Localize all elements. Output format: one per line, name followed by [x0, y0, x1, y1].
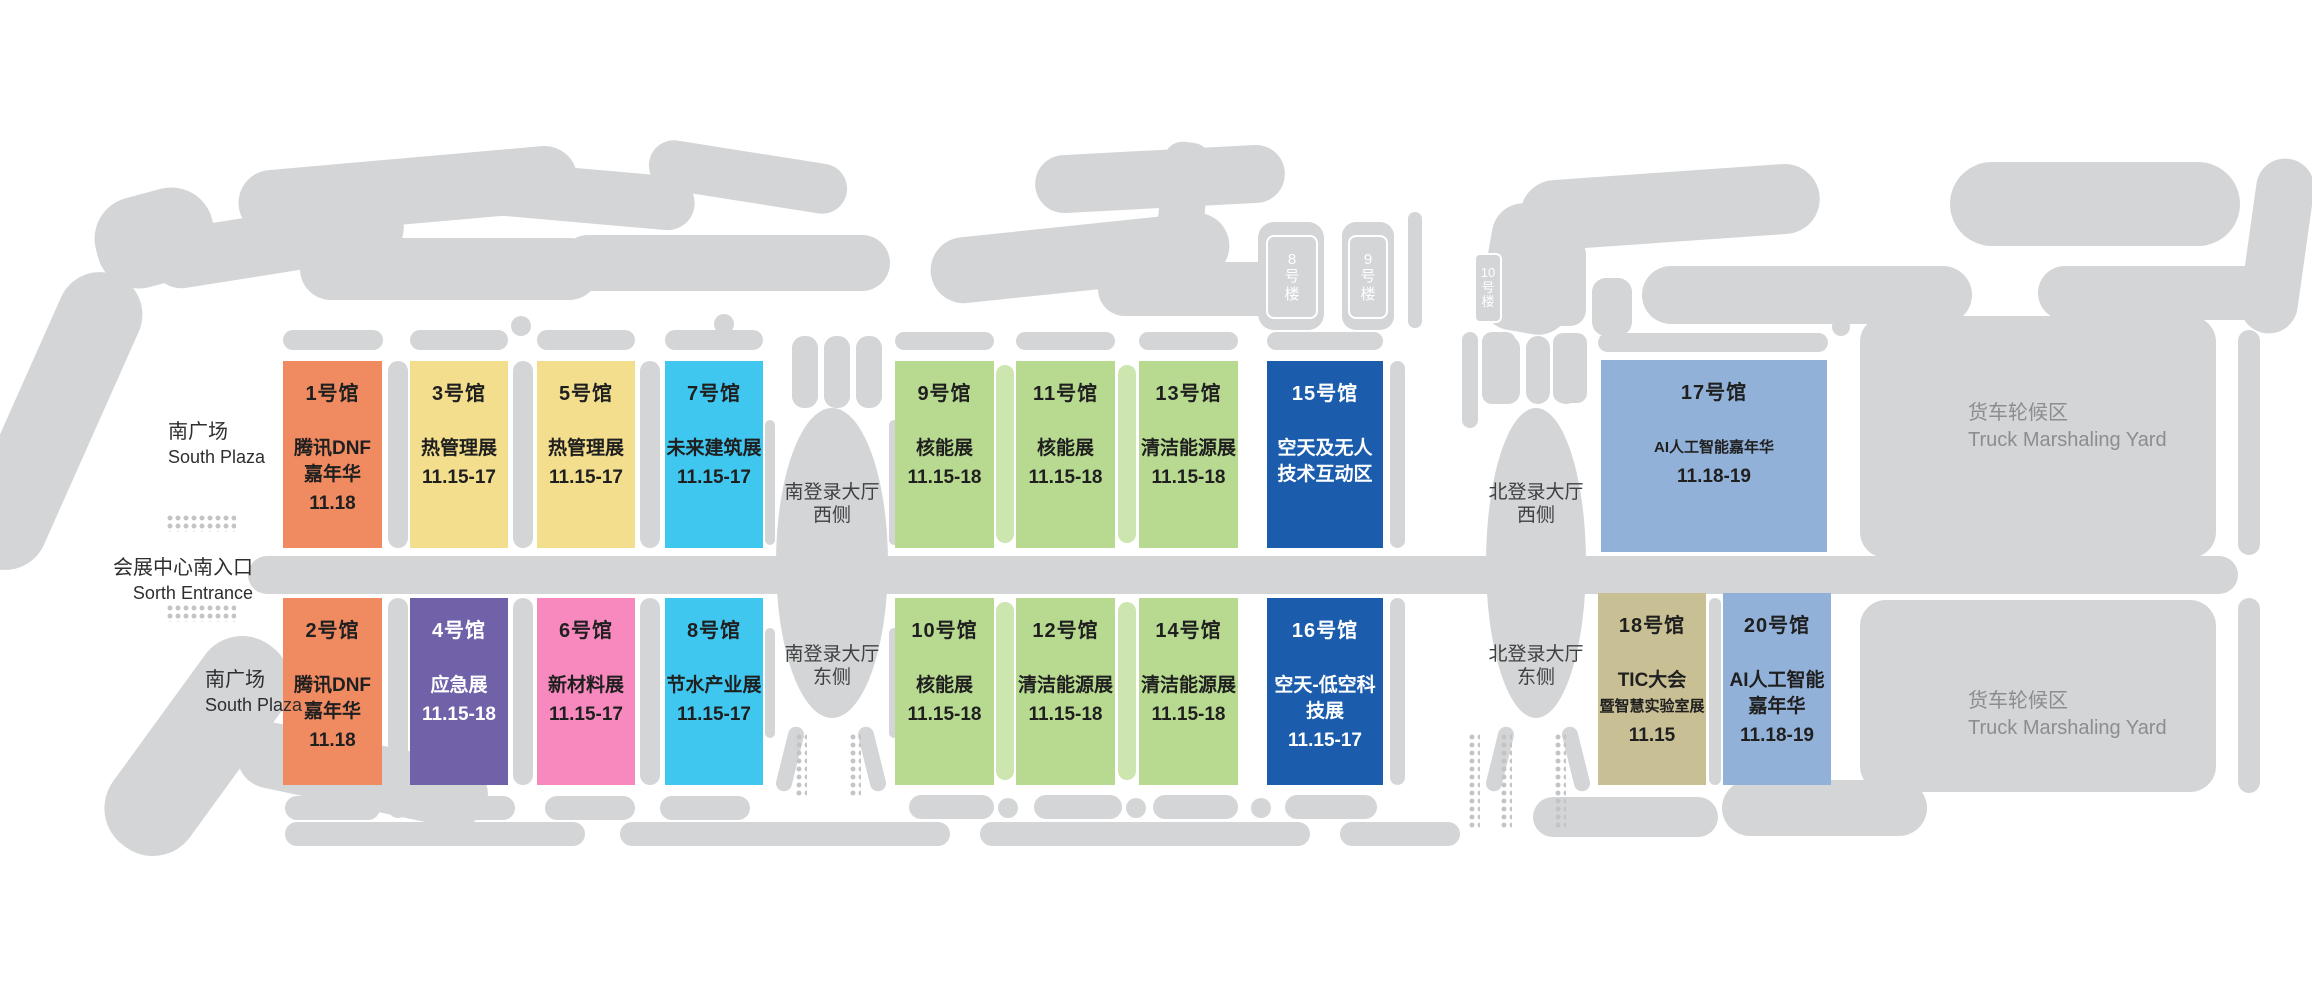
- hall-5: 5号馆热管理展11.15-17: [537, 361, 635, 548]
- label-south-plaza-top: 南广场 South Plaza: [168, 420, 265, 470]
- hall-dates: 11.15-18: [1152, 467, 1226, 489]
- decor-shape: [537, 330, 635, 350]
- hall-name-line: 清洁能源展: [1018, 673, 1113, 699]
- hall-number: 10号馆: [911, 614, 977, 643]
- building-8-plate: 8号楼: [1266, 235, 1318, 319]
- decor-shape: [388, 798, 408, 818]
- decor-shape: [620, 822, 950, 846]
- hall-number: 18号馆: [1619, 609, 1685, 638]
- truck-yard-label-zh: 货车轮候区: [1968, 688, 2167, 715]
- hall-dates: 11.18: [309, 493, 356, 515]
- hall-exhibition-name: AI人工智能嘉年华: [1729, 668, 1824, 720]
- hall-exhibition-name: 核能展: [1037, 436, 1094, 462]
- decor-shape: [1496, 336, 1520, 404]
- hall-16: 16号馆空天-低空科技展11.15-17: [1267, 598, 1383, 785]
- hall-exhibition-name: 新材料展: [548, 673, 624, 699]
- hall-name-line: 应急展: [430, 673, 487, 699]
- hall-dates: 11.15-18: [1029, 467, 1103, 489]
- hall-exhibition-name: 核能展: [916, 436, 973, 462]
- hall-name-line: 嘉年华: [1729, 694, 1824, 720]
- hall-dates: 11.15-17: [422, 467, 496, 489]
- hall-exhibition-name: 清洁能源展: [1018, 673, 1113, 699]
- plate-char: 号: [1284, 268, 1299, 285]
- building-9-plate: 9号楼: [1348, 235, 1388, 319]
- dots-decoration: [1554, 733, 1566, 829]
- hall-14: 14号馆清洁能源展11.15-18: [1139, 598, 1238, 785]
- label-line: 西侧: [1486, 504, 1586, 527]
- hall-name-line: TIC大会: [1599, 668, 1704, 694]
- hall-name-line: AI人工智能: [1729, 668, 1824, 694]
- hall-connector: [996, 365, 1014, 543]
- decor-shape: [2238, 598, 2260, 793]
- decor-shape: [1408, 212, 1422, 328]
- hall-7: 7号馆未来建筑展11.15-17: [665, 361, 763, 548]
- decor-shape: [1390, 598, 1405, 785]
- truck-yard-label-zh: 货车轮候区: [1968, 400, 2167, 427]
- truck-yard-label: 货车轮候区 Truck Marshaling Yard: [1968, 400, 2167, 454]
- hall-number: 20号馆: [1744, 609, 1810, 638]
- hall-number: 14号馆: [1155, 614, 1221, 643]
- hall-exhibition-name: 清洁能源展: [1141, 436, 1236, 462]
- hall-dates: 11.18-19: [1740, 725, 1814, 747]
- hall-name-line: 清洁能源展: [1141, 673, 1236, 699]
- hall-connector: [1118, 365, 1136, 543]
- plate-char: 8: [1288, 251, 1296, 268]
- hall-number: 12号馆: [1032, 614, 1098, 643]
- decor-shape: [1251, 798, 1271, 818]
- label-south-plaza-zh: 南广场: [168, 420, 265, 445]
- hall-12: 12号馆清洁能源展11.15-18: [1016, 598, 1115, 785]
- decor-shape: [1462, 332, 1478, 428]
- decor-shape: [2238, 330, 2260, 555]
- decor-shape: [1592, 278, 1632, 336]
- hall-name-line: 热管理展: [548, 436, 624, 462]
- decor-shape: [1285, 795, 1377, 819]
- hall-dates: 11.18: [309, 730, 356, 752]
- hall-name-line: 腾讯DNF: [294, 436, 371, 462]
- decor-shape: [300, 238, 600, 300]
- hall-number: 1号馆: [305, 377, 359, 406]
- hall-name-line: 热管理展: [421, 436, 497, 462]
- plate-char: 楼: [1481, 295, 1494, 310]
- decor-shape: [1832, 318, 1850, 336]
- decor-shape: [660, 796, 750, 820]
- label-south-plaza-en: South Plaza: [168, 445, 265, 470]
- label-south-entrance: 会展中心南入口 Sorth Entrance: [88, 556, 253, 606]
- hall-number: 2号馆: [305, 614, 359, 643]
- decor-shape: [420, 796, 515, 820]
- label-south-plaza-bottom: 南广场 South Plaza: [205, 668, 302, 718]
- hall-dates: 11.15-18: [1152, 704, 1226, 726]
- dots-decoration: [795, 733, 807, 797]
- hall-11: 11号馆核能展11.15-18: [1016, 361, 1115, 548]
- hall-exhibition-name: 空天及无人技术互动区: [1277, 436, 1372, 488]
- dots-decoration: [1500, 733, 1512, 829]
- hall-6: 6号馆新材料展11.15-17: [537, 598, 635, 785]
- decor-shape: [640, 361, 660, 548]
- hall-name-line: 核能展: [916, 673, 973, 699]
- hall-dates: 11.18-19: [1677, 466, 1751, 488]
- decor-shape: [388, 598, 408, 785]
- hall-exhibition-name: AI人工智能嘉年华: [1654, 435, 1774, 461]
- hall-number: 15号馆: [1292, 377, 1358, 406]
- hall-1: 1号馆腾讯DNF嘉年华11.18: [283, 361, 382, 548]
- decor-shape: [285, 796, 380, 820]
- decor-shape: [1016, 332, 1115, 350]
- decor-shape: [545, 796, 635, 820]
- label-north-hall-west: 北登录大厅 西侧: [1486, 481, 1586, 527]
- hall-number: 11号馆: [1033, 377, 1098, 406]
- hall-name-line: 节水产业展: [666, 673, 761, 699]
- hall-exhibition-name: 未来建筑展: [666, 436, 761, 462]
- decor-shape: [640, 598, 660, 785]
- label-line: 北登录大厅: [1486, 481, 1586, 504]
- hall-exhibition-name: 节水产业展: [666, 673, 761, 699]
- decor-shape: [765, 420, 775, 545]
- hall-name-line: 技术互动区: [1277, 462, 1372, 488]
- hall-name-line: 核能展: [1037, 436, 1094, 462]
- decor-shape: [2236, 155, 2312, 337]
- decor-shape: [513, 598, 533, 785]
- decor-shape: [1950, 162, 2240, 246]
- exhibition-center-floor-map: 货车轮候区 Truck Marshaling Yard 货车轮候区 Truck …: [0, 0, 2312, 996]
- plate-char: 号: [1360, 268, 1375, 285]
- hall-name-line: 空天及无人: [1277, 436, 1372, 462]
- decor-shape: [998, 798, 1018, 818]
- decor-shape: [513, 361, 533, 548]
- decor-shape: [1598, 333, 1828, 352]
- hall-3: 3号馆热管理展11.15-17: [410, 361, 508, 548]
- decor-shape: [511, 316, 531, 336]
- hall-dates: 11.15-17: [1288, 730, 1362, 752]
- hall-name-line: 清洁能源展: [1141, 436, 1236, 462]
- decor-shape: [895, 332, 994, 350]
- decor-shape: [1554, 336, 1578, 404]
- truck-yard-bottom: 货车轮候区 Truck Marshaling Yard: [1860, 600, 2216, 792]
- decor-shape: [1139, 332, 1238, 350]
- hall-name-line: 嘉年华: [294, 699, 371, 725]
- hall-number: 3号馆: [432, 377, 486, 406]
- hall-exhibition-name: 应急展: [430, 673, 487, 699]
- dots-decoration: [1468, 733, 1480, 829]
- label-south-hall-east: 南登录大厅 东侧: [782, 643, 882, 689]
- hall-15: 15号馆空天及无人技术互动区: [1267, 361, 1383, 548]
- decor-shape: [1034, 795, 1122, 819]
- hall-exhibition-name: TIC大会暨智慧实验室展: [1599, 668, 1704, 720]
- hall-4: 4号馆应急展11.15-18: [410, 598, 508, 785]
- central-road: [248, 556, 2238, 594]
- decor-shape: [285, 822, 585, 846]
- hall-name-line: 技展: [1274, 699, 1375, 725]
- hall-number: 4号馆: [432, 614, 486, 643]
- label-line: 南登录大厅: [782, 643, 882, 666]
- label-south-entrance-zh: 会展中心南入口: [88, 556, 253, 581]
- hall-exhibition-name: 腾讯DNF嘉年华: [294, 673, 371, 725]
- plate-char: 楼: [1360, 286, 1375, 303]
- hall-name-line: 嘉年华: [294, 462, 371, 488]
- hall-exhibition-name: 腾讯DNF嘉年华: [294, 436, 371, 488]
- label-line: 北登录大厅: [1486, 643, 1586, 666]
- decor-shape: [1709, 598, 1721, 785]
- hall-exhibition-name: 热管理展: [421, 436, 497, 462]
- hall-number: 16号馆: [1292, 614, 1358, 643]
- hall-name-line: 腾讯DNF: [294, 673, 371, 699]
- label-line: 西侧: [782, 504, 882, 527]
- hall-exhibition-name: 清洁能源展: [1141, 673, 1236, 699]
- hall-exhibition-name: 热管理展: [548, 436, 624, 462]
- hall-number: 8号馆: [687, 614, 741, 643]
- decor-shape: [388, 361, 408, 548]
- dots-decoration: [166, 604, 236, 622]
- truck-yard-top: 货车轮候区 Truck Marshaling Yard: [1860, 316, 2216, 558]
- decor-shape: [1390, 361, 1405, 548]
- hall-name-line: 核能展: [916, 436, 973, 462]
- hall-dates: 11.15-18: [422, 704, 496, 726]
- hall-dates: 11.15-17: [549, 704, 623, 726]
- plate-char: 10: [1481, 266, 1495, 281]
- decor-shape: [0, 258, 156, 583]
- hall-20: 20号馆AI人工智能嘉年华11.18-19: [1723, 593, 1831, 785]
- hall-8: 8号馆节水产业展11.15-17: [665, 598, 763, 785]
- hall-number: 17号馆: [1681, 376, 1747, 405]
- decor-shape: [856, 336, 882, 408]
- label-south-entrance-en: Sorth Entrance: [88, 581, 253, 606]
- building-10-plate: 10号楼: [1474, 253, 1502, 323]
- decor-shape: [1126, 798, 1146, 818]
- truck-yard-label-en: Truck Marshaling Yard: [1968, 715, 2167, 742]
- hall-dates: 11.15-18: [908, 704, 982, 726]
- label-south-hall-west: 南登录大厅 西侧: [782, 481, 882, 527]
- label-north-hall-east: 北登录大厅 东侧: [1486, 643, 1586, 689]
- label-south-plaza-en: South Plaza: [205, 693, 302, 718]
- hall-17: 17号馆AI人工智能嘉年华11.18-19: [1601, 360, 1827, 552]
- hall-dates: 11.15-17: [677, 467, 751, 489]
- hall-13: 13号馆清洁能源展11.15-18: [1139, 361, 1238, 548]
- dots-decoration: [166, 514, 236, 532]
- hall-exhibition-name: 空天-低空科技展: [1274, 673, 1375, 725]
- hall-number: 7号馆: [687, 377, 741, 406]
- label-line: 东侧: [1486, 666, 1586, 689]
- decor-shape: [665, 330, 763, 350]
- decor-shape: [909, 795, 994, 819]
- plate-char: 楼: [1284, 286, 1299, 303]
- label-line: 南登录大厅: [782, 481, 882, 504]
- truck-yard-label-en: Truck Marshaling Yard: [1968, 427, 2167, 454]
- decor-shape: [765, 628, 775, 738]
- plate-char: 9: [1364, 251, 1372, 268]
- decor-shape: [824, 336, 850, 408]
- hall-name-line: 新材料展: [548, 673, 624, 699]
- hall-18: 18号馆TIC大会暨智慧实验室展11.15: [1598, 593, 1706, 785]
- hall-number: 6号馆: [559, 614, 613, 643]
- decor-shape: [410, 330, 508, 350]
- hall-name-line: 未来建筑展: [666, 436, 761, 462]
- decor-shape: [1267, 332, 1383, 350]
- decor-shape: [792, 336, 818, 408]
- hall-number: 13号馆: [1155, 377, 1221, 406]
- decor-shape: [714, 314, 734, 334]
- hall-dates: 11.15-17: [549, 467, 623, 489]
- hall-9: 9号馆核能展11.15-18: [895, 361, 994, 548]
- decor-shape: [1153, 795, 1238, 819]
- hall-connector: [1118, 602, 1136, 780]
- hall-dates: 11.15-18: [908, 467, 982, 489]
- hall-dates: 11.15-18: [1029, 704, 1103, 726]
- decor-shape: [283, 330, 383, 350]
- hall-dates: 11.15-17: [677, 704, 751, 726]
- hall-dates: 11.15: [1629, 725, 1676, 747]
- hall-name-line: AI人工智能嘉年华: [1654, 435, 1774, 461]
- hall-name-line: 暨智慧实验室展: [1599, 694, 1704, 720]
- decor-shape: [1526, 336, 1550, 404]
- hall-10: 10号馆核能展11.15-18: [895, 598, 994, 785]
- hall-name-line: 空天-低空科: [1274, 673, 1375, 699]
- label-line: 东侧: [782, 666, 882, 689]
- plate-char: 号: [1481, 281, 1494, 296]
- label-south-plaza-zh: 南广场: [205, 668, 302, 693]
- hall-number: 5号馆: [559, 377, 613, 406]
- hall-number: 9号馆: [917, 377, 971, 406]
- hall-exhibition-name: 核能展: [916, 673, 973, 699]
- dots-decoration: [849, 733, 861, 797]
- decor-shape: [560, 235, 890, 291]
- hall-connector: [996, 602, 1014, 780]
- decor-shape: [1340, 822, 1460, 846]
- truck-yard-label: 货车轮候区 Truck Marshaling Yard: [1968, 688, 2167, 742]
- decor-shape: [980, 822, 1310, 846]
